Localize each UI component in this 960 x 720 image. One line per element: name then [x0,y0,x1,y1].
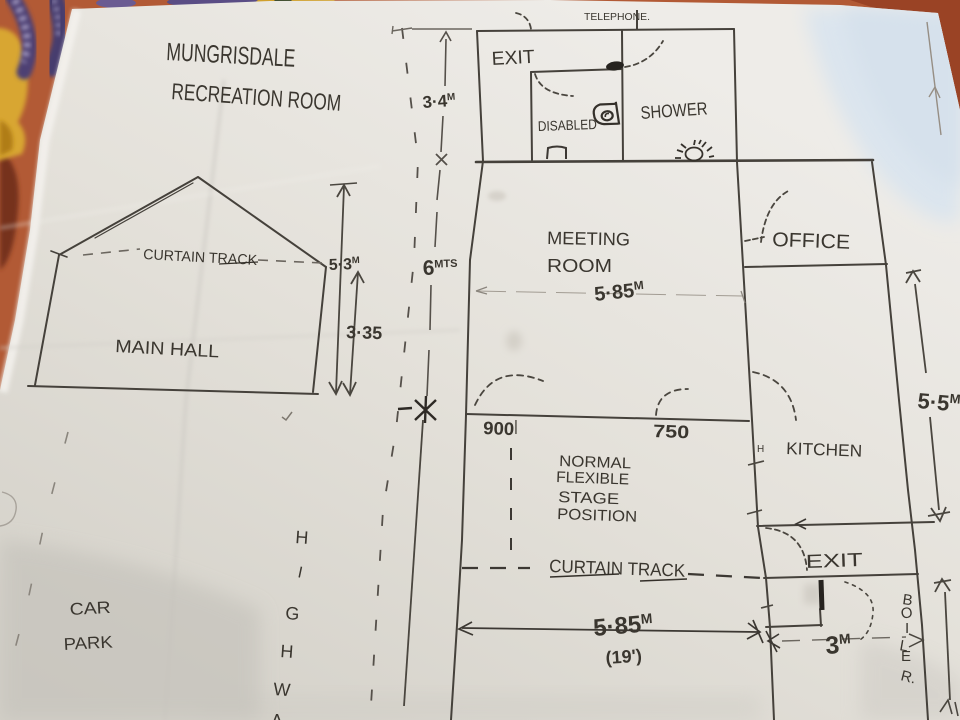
svg-text:POSITION: POSITION [557,506,638,526]
svg-text:3·35: 3·35 [346,322,383,343]
svg-text:750: 750 [653,421,690,442]
svg-text:H: H [757,444,764,455]
svg-text:MEETING: MEETING [547,228,630,249]
svg-text:H: H [280,641,294,662]
svg-text:W: W [273,679,291,700]
svg-text:EXIT: EXIT [805,550,863,573]
svg-text:ROOM: ROOM [547,256,612,276]
svg-text:900: 900 [483,418,515,439]
svg-text:A: A [271,711,283,720]
svg-text:DISABLED: DISABLED [538,116,598,134]
svg-text:KITCHEN: KITCHEN [786,439,863,461]
svg-text:FLEXIBLE: FLEXIBLE [556,469,630,489]
svg-text:PARK: PARK [63,632,114,654]
svg-text:TELEPHONE.: TELEPHONE. [584,12,650,23]
svg-text:G: G [285,603,300,624]
svg-text:I: I [905,620,909,637]
svg-text:|: | [514,418,518,435]
svg-text:STAGE: STAGE [558,489,620,508]
svg-text:E: E [901,648,911,665]
svg-text:H: H [295,527,309,548]
svg-text:EXIT: EXIT [491,47,535,70]
svg-text:CAR: CAR [69,598,111,619]
svg-text:OFFICE: OFFICE [772,229,851,254]
svg-text:(19'): (19') [605,646,643,668]
